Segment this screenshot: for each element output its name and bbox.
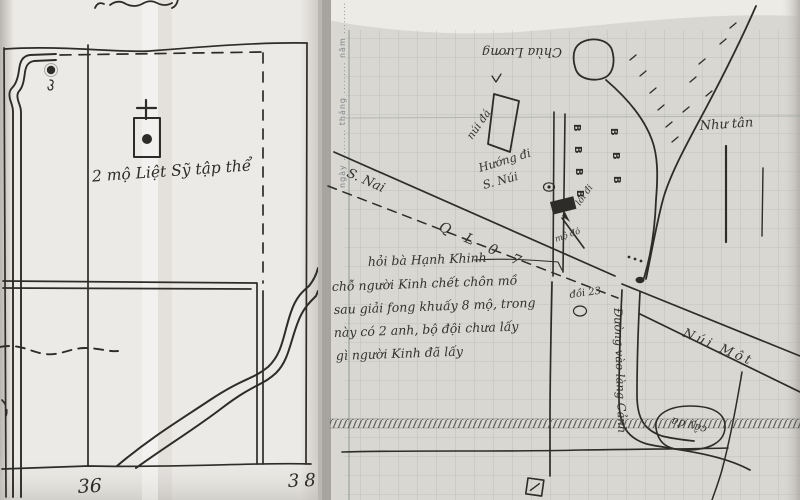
house-icon: B <box>610 152 621 160</box>
notebook-date-margin: ngày ......... tháng ......... năm .....… <box>338 2 347 188</box>
junction-blob <box>636 277 645 283</box>
house-icon: B <box>571 124 582 132</box>
building-stroke <box>762 168 763 236</box>
house-icon: B <box>611 176 622 184</box>
grid-number-36: 36 <box>77 475 102 498</box>
right-paper-left-edge <box>322 0 331 500</box>
left-paper-edge-shadow <box>0 0 14 500</box>
dot <box>634 258 637 261</box>
label-top-upside-down: Chùa Lương <box>482 44 562 59</box>
house-icon: B <box>573 168 584 176</box>
grid-number-38: 38 <box>287 470 318 492</box>
paper-crease-shadow <box>158 0 172 500</box>
railway-hatch-band <box>330 419 800 428</box>
house-icon: B <box>608 128 619 136</box>
left-paper-right-shadow <box>300 0 318 500</box>
circled-dot-center <box>547 185 550 188</box>
left-map-photo: 2 mộ Liệt Sỹ tập thể 36 38 <box>0 0 318 500</box>
right-map-photo: ngày ......... tháng ......... năm .....… <box>322 0 800 500</box>
two-hand-drawn-maps-photo: 2 mộ Liệt Sỹ tập thể 36 38 <box>0 0 800 500</box>
dot <box>628 256 631 259</box>
paper-crease <box>142 0 158 500</box>
dot <box>640 260 643 263</box>
house-icon: B <box>572 146 583 154</box>
